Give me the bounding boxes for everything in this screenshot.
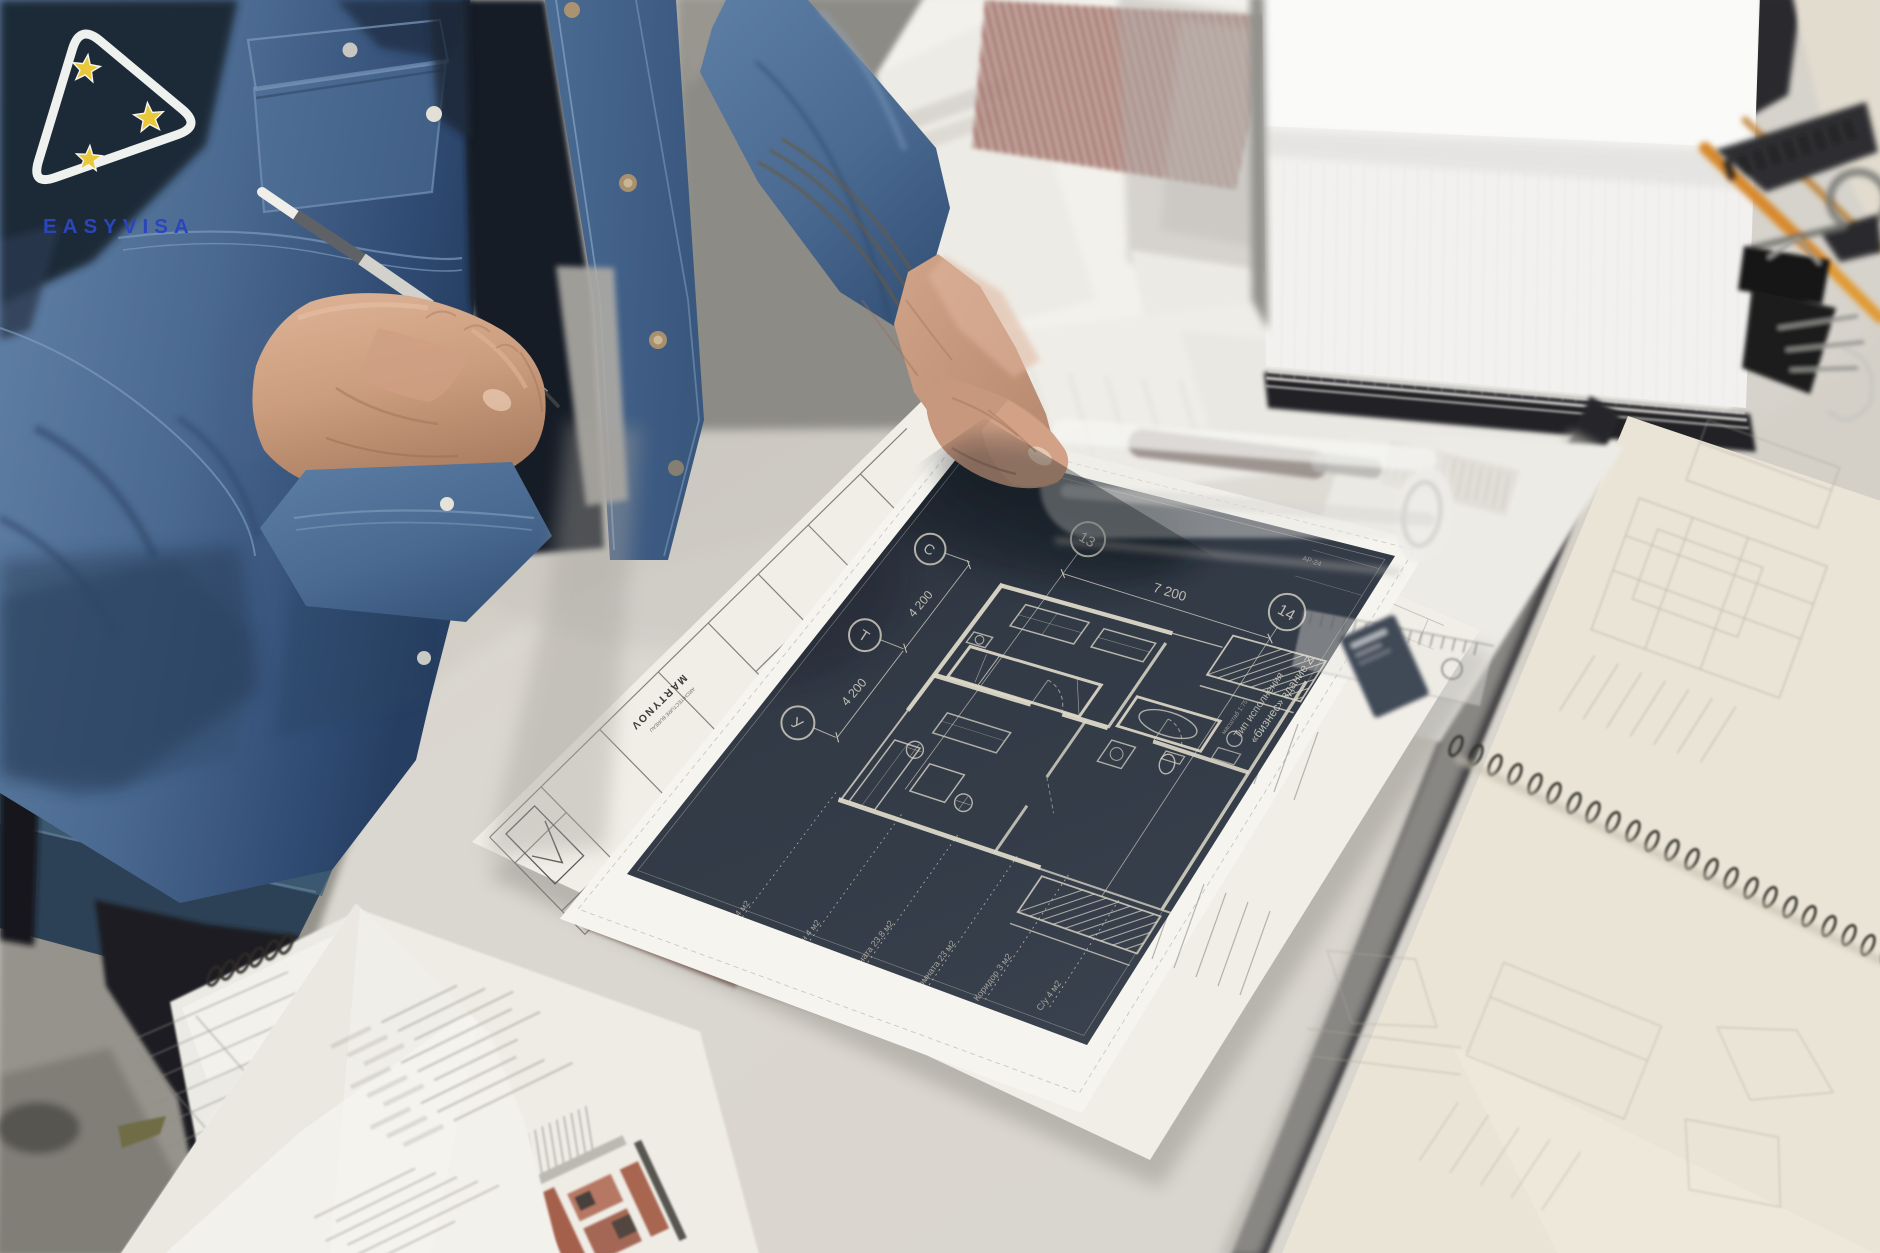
svg-text:EASYVISA: EASYVISA [43, 215, 195, 238]
